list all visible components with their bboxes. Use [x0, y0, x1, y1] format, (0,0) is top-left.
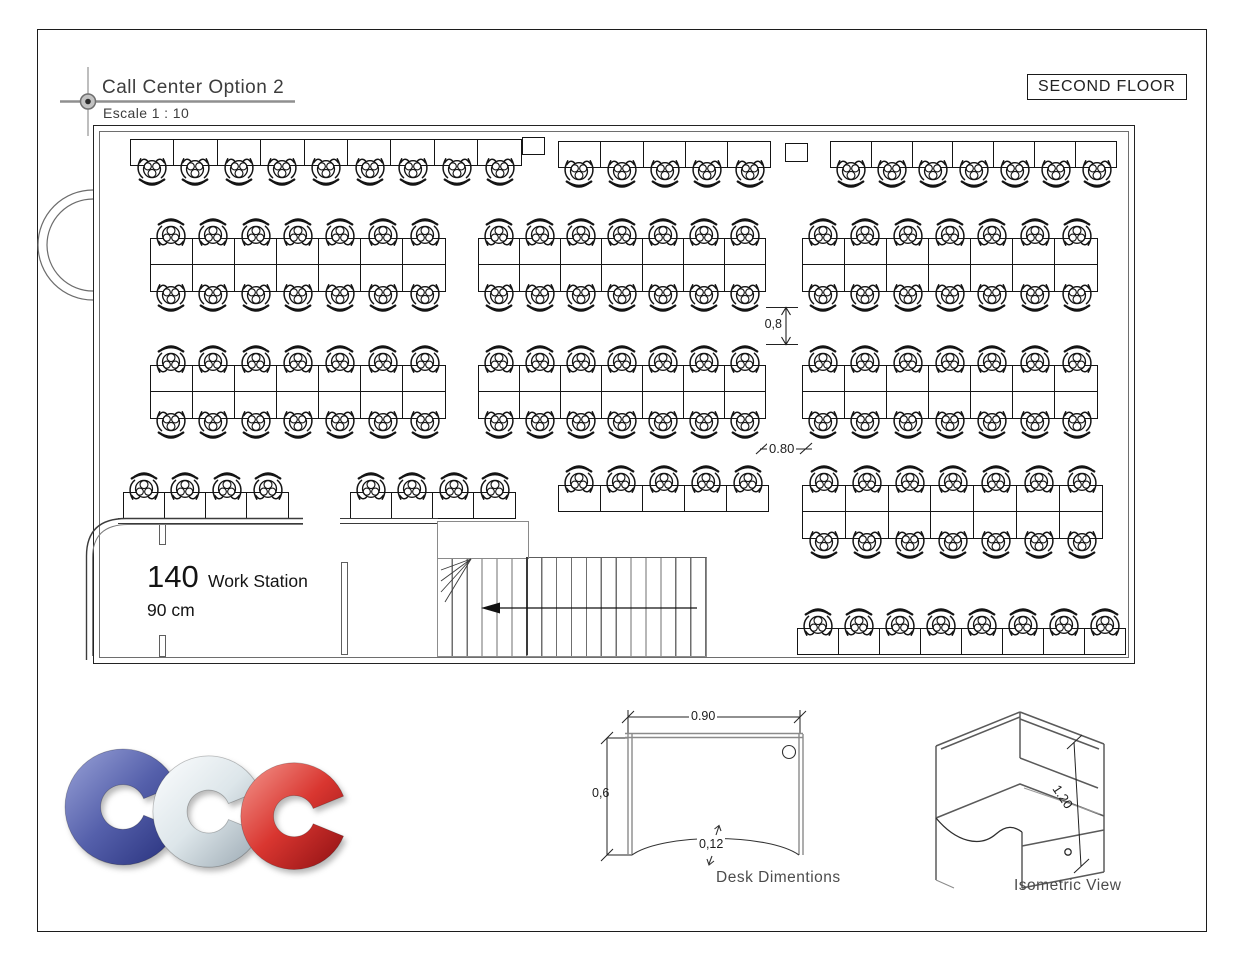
wall-stub-top [159, 524, 166, 545]
chair-icon [483, 409, 515, 441]
chair-icon [976, 216, 1008, 248]
chair-icon [892, 343, 924, 375]
chair-icon [976, 343, 1008, 375]
chair-icon [1023, 463, 1055, 495]
chair-icon [937, 463, 969, 495]
chair-icon [606, 216, 638, 248]
chair-icon [396, 470, 428, 502]
chair-icon [851, 463, 883, 495]
chair-icon [565, 343, 597, 375]
chair-icon [155, 409, 187, 441]
column-pillar [522, 137, 545, 155]
chair-icon [688, 409, 720, 441]
chair-icon [1023, 529, 1055, 561]
chair-icon [524, 216, 556, 248]
chair-icon [729, 216, 761, 248]
chair-icon [409, 409, 441, 441]
logo-letter-c [238, 760, 354, 876]
chair-icon [282, 343, 314, 375]
wall-partition [341, 562, 348, 655]
chair-icon [524, 409, 556, 441]
chair-icon [934, 343, 966, 375]
chair-icon [691, 158, 723, 190]
chair-icon [934, 216, 966, 248]
chair-icon [647, 409, 679, 441]
chair-icon [688, 216, 720, 248]
chair-icon [892, 409, 924, 441]
chair-icon [1040, 158, 1072, 190]
chair-icon [1061, 282, 1093, 314]
isometric-caption: Isometric View [1014, 877, 1122, 895]
chair-icon [1007, 606, 1039, 638]
chair-icon [647, 216, 679, 248]
chair-icon [688, 282, 720, 314]
chair-icon [483, 282, 515, 314]
chair-icon [606, 343, 638, 375]
chair-icon [925, 606, 957, 638]
chair-icon [524, 343, 556, 375]
chair-icon [155, 282, 187, 314]
desk-width-dim: 0.90 [689, 709, 717, 723]
chair-icon [807, 216, 839, 248]
chair-icon [128, 470, 160, 502]
chair-icon [155, 343, 187, 375]
chair-icon [892, 216, 924, 248]
chair-icon [808, 463, 840, 495]
chair-icon [807, 409, 839, 441]
chair-icon [155, 216, 187, 248]
chair-icon [266, 156, 298, 188]
chair-icon [367, 282, 399, 314]
chair-icon [252, 470, 284, 502]
chair-icon [849, 343, 881, 375]
chair-icon [1048, 606, 1080, 638]
chair-icon [647, 343, 679, 375]
chair-icon [355, 470, 387, 502]
chair-icon [282, 216, 314, 248]
chair-icon [934, 282, 966, 314]
chair-icon [367, 216, 399, 248]
chair-icon [980, 529, 1012, 561]
chair-icon [367, 343, 399, 375]
chair-icon [441, 156, 473, 188]
stair-divider [526, 557, 528, 655]
chair-icon [851, 529, 883, 561]
chair-icon [649, 158, 681, 190]
workstation-module-size: 90 cm [147, 600, 195, 621]
chair-icon [1061, 409, 1093, 441]
desk-depth-dim: 0,6 [592, 786, 609, 800]
chair-icon [1019, 343, 1051, 375]
chair-icon [606, 158, 638, 190]
chair-icon [835, 158, 867, 190]
chair-icon [849, 282, 881, 314]
aisle-dim-horizontal: 0.80 [767, 441, 796, 456]
chair-icon [324, 282, 356, 314]
chair-icon [802, 606, 834, 638]
chair-icon [1066, 529, 1098, 561]
desk-cut-dim: 0,12 [697, 837, 725, 851]
chair-icon [483, 216, 515, 248]
chair-icon [324, 409, 356, 441]
chair-icon [729, 282, 761, 314]
chair-icon [240, 409, 272, 441]
chair-icon [958, 158, 990, 190]
chair-icon [1066, 463, 1098, 495]
chair-icon [197, 282, 229, 314]
chair-icon [282, 282, 314, 314]
chair-icon [1081, 158, 1113, 190]
chair-icon [169, 470, 201, 502]
desk-detail-caption: Desk Dimentions [716, 869, 841, 887]
chair-icon [732, 463, 764, 495]
chair-icon [136, 156, 168, 188]
chair-icon [807, 343, 839, 375]
chair-icon [483, 343, 515, 375]
wall-counter-left [118, 518, 303, 524]
desk-dimension-drawing [588, 698, 878, 883]
chair-icon [409, 216, 441, 248]
chair-icon [1019, 409, 1051, 441]
chair-icon [884, 606, 916, 638]
chair-icon [934, 409, 966, 441]
chair-icon [565, 409, 597, 441]
chair-icon [524, 282, 556, 314]
chair-icon [606, 409, 638, 441]
chair-icon [438, 470, 470, 502]
chair-icon [1089, 606, 1121, 638]
chair-icon [240, 343, 272, 375]
company-logo [62, 746, 362, 876]
chair-icon [409, 282, 441, 314]
chair-icon [894, 529, 926, 561]
chair-icon [324, 343, 356, 375]
chair-icon [565, 216, 597, 248]
chair-icon [849, 409, 881, 441]
chair-icon [606, 282, 638, 314]
chair-icon [976, 409, 1008, 441]
chair-icon [1019, 282, 1051, 314]
workstation-count-label: Work Station [208, 571, 308, 592]
column-pillar [785, 143, 808, 162]
chair-icon [240, 282, 272, 314]
stair-landing [437, 521, 529, 559]
chair-icon [917, 158, 949, 190]
chair-icon [734, 158, 766, 190]
chair-icon [197, 409, 229, 441]
chair-icon [565, 282, 597, 314]
panel-hole [1065, 849, 1071, 855]
wall-counter-right [340, 518, 438, 524]
chair-icon [688, 343, 720, 375]
staircase [437, 557, 707, 657]
chair-icon [484, 156, 516, 188]
chair-icon [563, 463, 595, 495]
chair-icon [310, 156, 342, 188]
chair-icon [648, 463, 680, 495]
chair-icon [807, 282, 839, 314]
chair-icon [999, 158, 1031, 190]
chair-icon [966, 606, 998, 638]
chair-icon [690, 463, 722, 495]
wall-stub-bottom [159, 635, 166, 657]
workstation-count: 140 [147, 559, 199, 595]
chair-icon [282, 409, 314, 441]
chair-icon [240, 216, 272, 248]
chair-icon [179, 156, 211, 188]
chair-icon [367, 409, 399, 441]
chair-icon [605, 463, 637, 495]
chair-icon [324, 216, 356, 248]
chair-icon [197, 343, 229, 375]
chair-icon [223, 156, 255, 188]
chair-icon [397, 156, 429, 188]
aisle-dim-vertical: 0,8 [752, 317, 782, 331]
chair-icon [892, 282, 924, 314]
grommet-hole [783, 746, 796, 759]
chair-icon [211, 470, 243, 502]
chair-icon [729, 409, 761, 441]
chair-icon [729, 343, 761, 375]
chair-icon [980, 463, 1012, 495]
chair-icon [894, 463, 926, 495]
chair-icon [1061, 216, 1093, 248]
chair-icon [843, 606, 875, 638]
chair-icon [808, 529, 840, 561]
chair-icon [1019, 216, 1051, 248]
chair-icon [976, 282, 1008, 314]
chair-icon [1061, 343, 1093, 375]
chair-icon [409, 343, 441, 375]
chair-icon [876, 158, 908, 190]
chair-icon [197, 216, 229, 248]
chair-icon [479, 470, 511, 502]
chair-icon [937, 529, 969, 561]
chair-icon [563, 158, 595, 190]
chair-icon [647, 282, 679, 314]
chair-icon [849, 216, 881, 248]
chair-icon [354, 156, 386, 188]
drawing-sheet: Call Center Option 2 Escale 1 : 10 SECON… [0, 0, 1243, 960]
